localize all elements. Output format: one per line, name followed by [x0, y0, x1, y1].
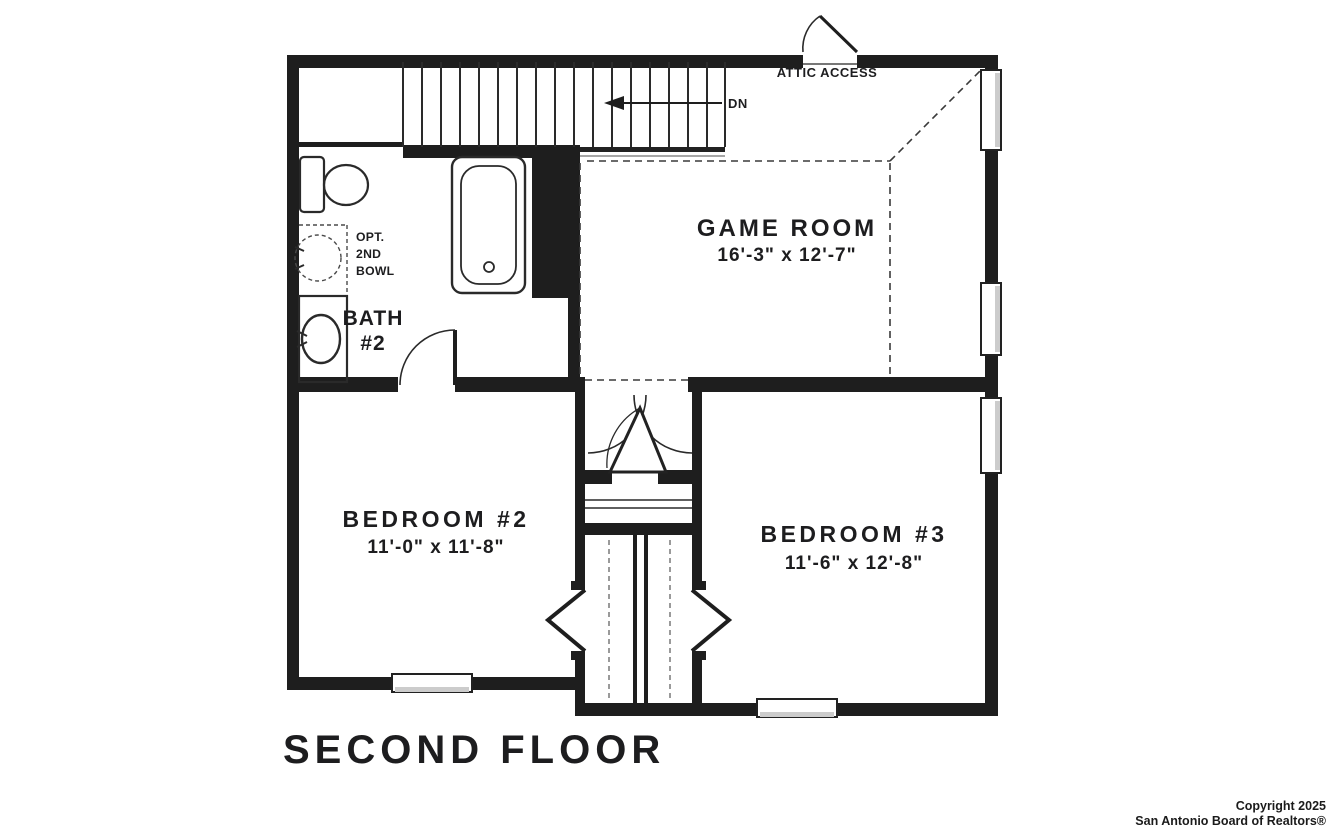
optional-second-bowl: [295, 225, 347, 296]
attic-access-door: ATTIC ACCESS: [777, 16, 878, 80]
opt-bowl-line2: 2ND: [356, 247, 381, 261]
bedroom3-dims: 11'-6" x 12'-8": [785, 553, 923, 574]
bath2-label-line2: #2: [360, 332, 385, 355]
window: [981, 283, 1001, 355]
bathtub-fixture: [452, 157, 525, 293]
bifold-door-bedroom3: [692, 581, 729, 660]
bathroom-fixtures: [295, 157, 525, 385]
down-arrow-head: [604, 96, 624, 110]
bedroom3-label: BEDROOM #3: [760, 521, 947, 547]
attic-access-label: ATTIC ACCESS: [777, 65, 878, 80]
bedroom2-dims: 11'-0" x 11'-8": [367, 537, 504, 558]
copyright-line1: Copyright 2025: [1236, 799, 1326, 813]
attic-door-swing: [803, 16, 820, 52]
attic-door-leaf: [820, 16, 857, 52]
bath-door: [400, 330, 455, 385]
page-title: SECOND FLOOR: [283, 728, 665, 772]
bath2-label-line1: BATH: [343, 307, 404, 330]
stair-treads: [403, 62, 725, 147]
copyright-line2: San Antonio Board of Realtors®: [1135, 814, 1326, 828]
game-room-dims: 16'-3" x 12'-7": [717, 245, 856, 266]
opt-bowl-line1: OPT.: [356, 230, 384, 244]
room-labels: GAME ROOM 16'-3" x 12'-7" BEDROOM #2 11'…: [342, 215, 947, 574]
window: [981, 70, 1001, 150]
floor-plan-page: DN ATTIC ACCESS: [0, 0, 1329, 840]
floor-plan-drawing: DN ATTIC ACCESS: [0, 0, 1329, 840]
down-label: DN: [728, 96, 748, 111]
window: [981, 398, 1001, 473]
stair-landing-edge: [580, 147, 725, 152]
wall-chase: [532, 145, 580, 298]
bifold-door-bedroom2: [548, 581, 585, 660]
opt-bowl-line3: BOWL: [356, 264, 395, 278]
staircase: DN: [403, 62, 748, 156]
toilet-fixture: [300, 157, 368, 212]
sink-fixture: [297, 296, 347, 382]
window: [757, 699, 837, 717]
copyright-notice: Copyright 2025 San Antonio Board of Real…: [1135, 799, 1326, 828]
bedroom2-label: BEDROOM #2: [342, 506, 529, 532]
window: [392, 674, 472, 692]
bath-door-swing: [400, 330, 455, 385]
linen-door-leaf: [610, 408, 666, 472]
game-room-label: GAME ROOM: [697, 215, 877, 242]
